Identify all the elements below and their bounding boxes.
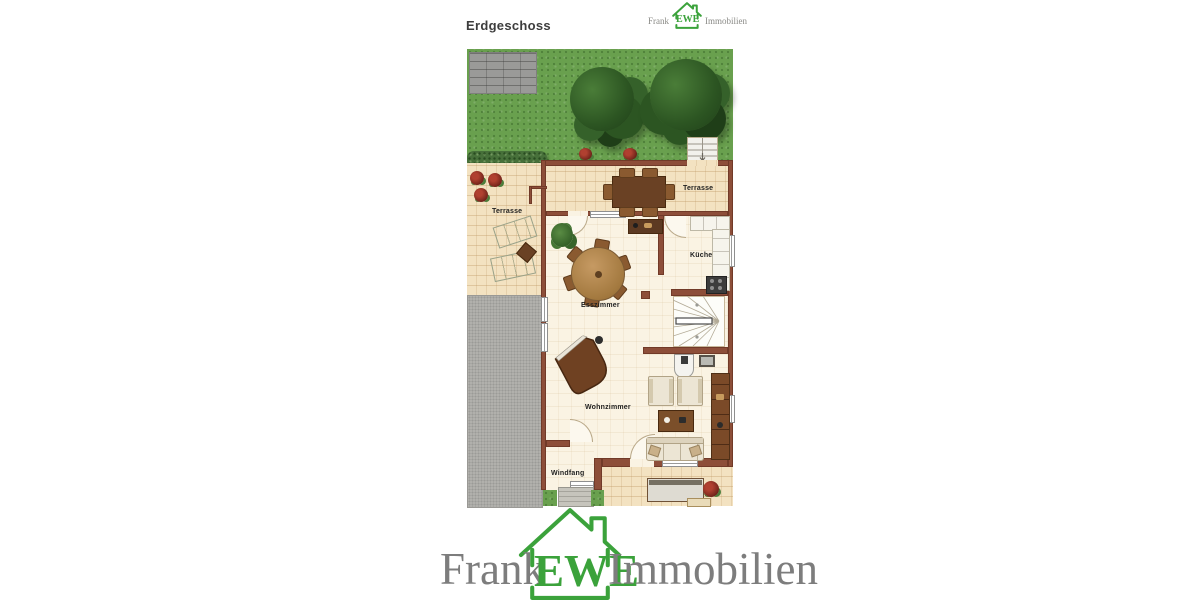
brand-word-frank: Frank — [440, 547, 530, 592]
flower-bush — [488, 173, 502, 187]
wall-top-opening — [687, 160, 718, 166]
flower-bush — [474, 188, 488, 202]
company-logo-large: Frank EWE Immobilien — [430, 505, 770, 600]
flower-bush — [470, 171, 484, 185]
flower-bush — [579, 148, 592, 160]
wall-pillar — [641, 291, 650, 299]
brand-word-ewe: EWE — [676, 14, 699, 25]
sofa — [646, 437, 704, 461]
brand-word-immobilien: Immobilien — [705, 16, 747, 26]
brand-word-immobilien: Immobilien — [608, 547, 818, 592]
round-table — [571, 247, 625, 301]
tree — [650, 59, 722, 131]
brand-word-frank: Frank — [648, 16, 669, 26]
terrace-wall-stub-v — [529, 186, 532, 204]
round-dining-set — [566, 242, 628, 304]
room-label-kitchen: Küche — [690, 252, 712, 259]
grass-strip — [591, 490, 604, 506]
chair — [642, 168, 658, 178]
armchair — [677, 376, 703, 406]
chair — [619, 207, 635, 217]
flower-bush — [703, 481, 719, 497]
chair — [619, 168, 635, 178]
entry-steps — [558, 487, 594, 507]
chair — [642, 207, 658, 217]
stove — [706, 276, 727, 294]
window — [662, 460, 698, 467]
room-label-terrace-upper: Terrasse — [683, 185, 713, 192]
room-label-dining: Esszimmer — [581, 302, 620, 309]
window — [541, 297, 548, 322]
wall-stairs-bottom — [643, 347, 728, 354]
wall-vestibule-top — [546, 440, 570, 447]
sideboard-item — [644, 223, 652, 228]
chair — [665, 184, 675, 200]
piano-stool — [595, 336, 603, 344]
staircase — [673, 296, 725, 347]
room-label-living: Wohnzimmer — [585, 404, 631, 411]
wall-vestibule-right — [594, 458, 602, 490]
stone-patio — [469, 52, 537, 94]
driveway — [467, 295, 543, 508]
armchair — [648, 376, 674, 406]
page-title: Erdgeschoss — [466, 18, 551, 34]
washbasin — [674, 354, 694, 378]
chair — [603, 184, 613, 200]
floorplan: Terrasse Terrasse Küche Esszimmer Wohnzi… — [467, 49, 733, 506]
dining-table-terrace — [612, 176, 666, 208]
room-label-vestibule: Windfang — [551, 470, 584, 477]
grass-strip — [543, 490, 557, 506]
tree — [570, 67, 634, 131]
sideboard-item — [633, 223, 638, 228]
flower-bush — [623, 148, 637, 160]
wall-cabinet — [711, 373, 730, 460]
brand-word-ewe: EWE — [534, 549, 606, 594]
wall-picture — [699, 355, 715, 367]
window — [541, 323, 548, 352]
coffee-table — [658, 410, 694, 432]
company-logo-small: Frank EWE Immobilien — [648, 0, 758, 34]
room-label-terrace-left: Terrasse — [492, 208, 522, 215]
